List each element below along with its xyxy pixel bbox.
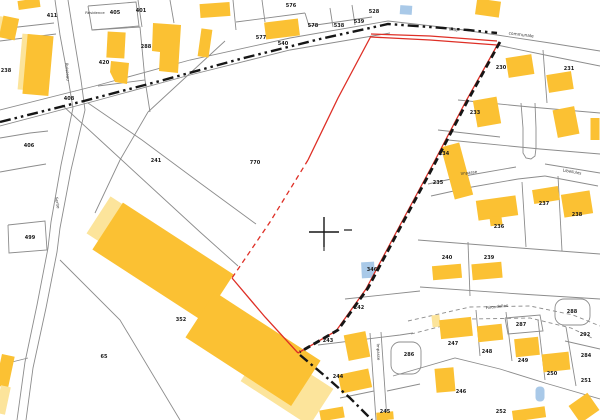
parcel-number-label: 346 — [367, 267, 378, 273]
parcel-boundary-line — [233, 0, 236, 30]
parcel-number-label: 251 — [581, 378, 592, 384]
building-footprint — [569, 393, 600, 420]
parcel-number-label: 284 — [581, 353, 592, 359]
parcel-boundary-line — [418, 240, 600, 254]
building-footprint — [0, 16, 19, 41]
street-name-label: Libellules — [563, 167, 582, 175]
parcel-number-label: 577 — [256, 35, 267, 41]
parcel-number-label: 238 — [1, 68, 12, 74]
parcel-number-label: 287 — [516, 322, 527, 328]
parcel-boundary-line — [535, 103, 536, 143]
building-footprint — [198, 28, 213, 57]
parcel-number-label: 499 — [25, 235, 36, 241]
parcel-boundary-line — [431, 179, 518, 196]
parcel-number-label: 539 — [354, 19, 365, 25]
pool-or-annex — [400, 5, 413, 15]
building-footprint — [338, 368, 372, 393]
selected-parcel-boundary[interactable] — [371, 37, 497, 45]
building-footprint — [542, 352, 571, 373]
parcel-boundary-line — [0, 164, 46, 172]
parcel-number-label: 247 — [448, 341, 459, 347]
parcel-number-label: 233 — [470, 110, 481, 116]
parcel-number-label: 540 — [278, 41, 289, 47]
building-footprint — [200, 2, 231, 18]
parcel-boundary-line — [0, 21, 388, 110]
building-footprint — [471, 262, 502, 281]
parcel-number-label: 352 — [176, 317, 187, 323]
parcel-boundary-line — [448, 140, 600, 154]
parcel-number-label: 243 — [323, 338, 334, 344]
parcel-number-label: 238 — [572, 212, 583, 218]
parcel-boundary-line — [506, 312, 512, 361]
parcel-number-label: 401 — [136, 8, 147, 14]
building-footprint — [432, 264, 462, 280]
parcel-boundary-line — [468, 242, 470, 296]
parcel-number-label: 65 — [101, 354, 108, 360]
parcel-number-label: 538 — [334, 23, 345, 29]
building-footprint — [506, 54, 535, 78]
parcel-boundary-line — [518, 176, 545, 179]
building-footprint — [514, 337, 540, 357]
cadastral-map-viewport[interactable]: 4114054015765785385395285775402382884204… — [0, 0, 600, 420]
parcel-boundary-line — [565, 341, 600, 349]
parcel-number-label: 288 — [567, 309, 578, 315]
parcel-number-label: 770 — [250, 160, 261, 166]
parcel-boundary-line — [545, 176, 598, 186]
parcel-boundary-line — [88, 2, 139, 30]
selected-parcel-boundary[interactable] — [308, 36, 371, 160]
parcel-boundary-line — [170, 0, 174, 23]
parcel-number-label: 242 — [354, 305, 365, 311]
parcel-number-label: 286 — [404, 352, 415, 358]
parcel-number-label: 248 — [482, 349, 493, 355]
parcel-number-label: 528 — [369, 9, 380, 15]
parcel-number-label: 405 — [110, 10, 121, 16]
building-footprint — [439, 317, 473, 339]
parcel-boundary-line — [381, 332, 387, 420]
street-name-label: Impasse — [460, 169, 478, 176]
parcel-number-label: 250 — [547, 371, 558, 377]
street-name-label: Ruisseau — [64, 63, 71, 82]
parcel-number-label: 236 — [494, 224, 505, 230]
building-footprint — [17, 0, 40, 10]
building-footprint — [475, 0, 501, 18]
parcel-boundary-line — [0, 131, 48, 138]
building-footprint — [110, 61, 129, 84]
street-name-label: Hirondelles — [485, 303, 508, 310]
parcel-number-label: 230 — [496, 65, 507, 71]
building-footprint — [546, 71, 574, 93]
parcel-number-label: 235 — [433, 180, 444, 186]
building-footprint — [512, 406, 546, 420]
cadastral-map[interactable]: 4114054015765785385395285775402382884204… — [0, 0, 600, 420]
parcel-boundary-line — [522, 182, 526, 247]
street-name-label: Impasse — [376, 344, 382, 361]
building-footprint — [0, 385, 11, 414]
parcel-number-label: 231 — [564, 66, 575, 72]
parcel-number-label: 578 — [308, 23, 319, 29]
parcel-number-label: 239 — [484, 255, 495, 261]
street-name-label: Sente — [54, 197, 61, 210]
parcel-boundary-line — [26, 110, 85, 420]
selected-parcel-boundary[interactable] — [298, 42, 499, 353]
parcel-number-label: 244 — [333, 374, 344, 380]
parcel-number-label: 292 — [580, 332, 591, 338]
parcel-number-label: 411 — [47, 13, 58, 19]
parcel-number-label: 288 — [141, 44, 152, 50]
building-footprint — [106, 32, 125, 59]
parcel-number-label: 237 — [539, 201, 550, 207]
building-footprint — [319, 406, 345, 420]
building-footprint — [344, 331, 371, 361]
street-name-label: Résidence — [85, 10, 105, 15]
parcel-boundary-line — [543, 50, 547, 103]
parcel-number-label: 252 — [496, 409, 507, 415]
parcel-number-label: 240 — [442, 255, 453, 261]
parcel-number-label: 245 — [380, 409, 391, 415]
parcel-boundary-line — [523, 143, 536, 159]
parcel-boundary-line — [95, 112, 148, 213]
parcel-number-label: 234 — [439, 151, 450, 157]
building-footprint — [264, 18, 300, 39]
parcel-number-label: 406 — [24, 143, 35, 149]
parcel-boundary-line — [521, 103, 523, 143]
parcel-boundary-line — [370, 333, 376, 420]
parcel-boundary-line — [387, 384, 420, 391]
selected-parcel-boundary[interactable] — [232, 160, 308, 278]
building-footprint — [477, 324, 504, 343]
parcel-boundary-line — [420, 287, 600, 299]
building-footprint — [591, 118, 600, 140]
building-footprint — [152, 23, 181, 73]
pool-or-annex — [536, 387, 545, 402]
building-footprint — [0, 354, 15, 388]
parcel-boundary-line — [345, 291, 420, 299]
street-name-label: Voie — [448, 26, 458, 33]
building-footprint — [22, 34, 53, 96]
commune-limit-line — [300, 42, 500, 352]
street-name-label: communale — [508, 30, 534, 39]
parcel-number-label: 249 — [518, 358, 529, 364]
parcel-number-label: 408 — [64, 96, 75, 102]
parcel-boundary-line — [330, 8, 333, 27]
parcel-number-label: 246 — [456, 389, 467, 395]
building-footprint — [434, 367, 455, 393]
parcel-number-label: 241 — [151, 158, 162, 164]
parcel-boundary-line — [558, 176, 562, 251]
parcel-number-label: 420 — [99, 60, 110, 66]
parcel-number-label: 576 — [286, 3, 297, 9]
